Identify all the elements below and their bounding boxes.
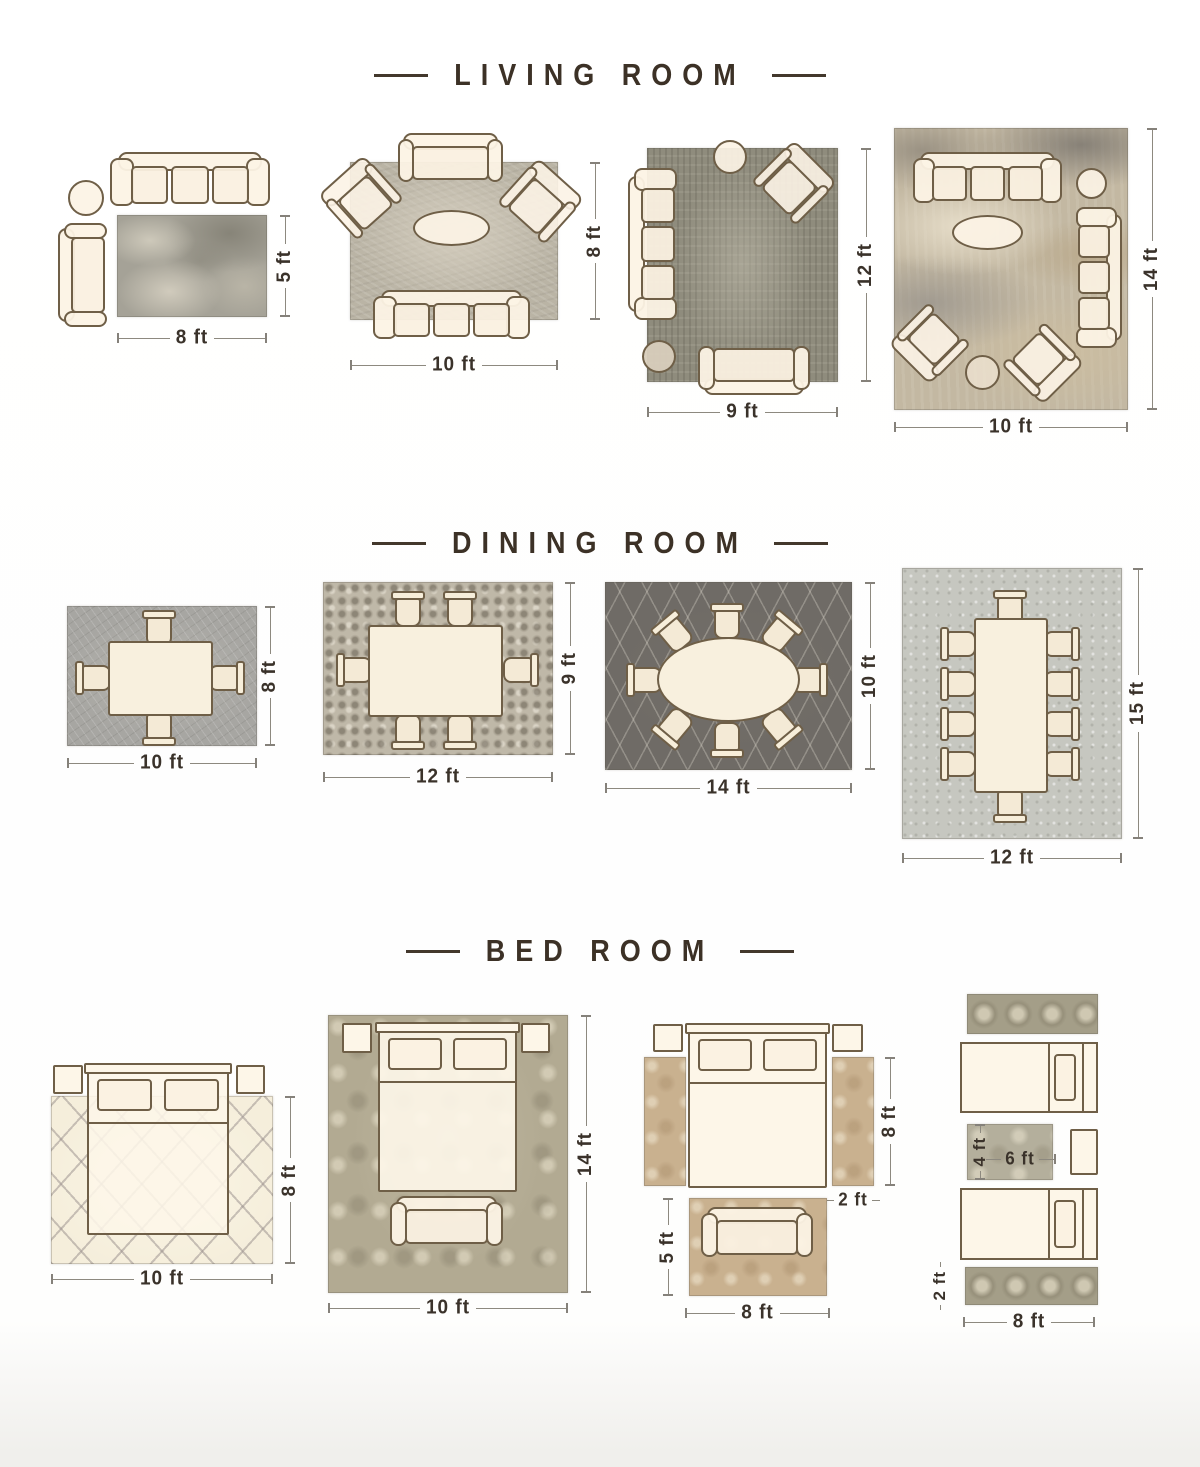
- bench: [701, 1207, 813, 1258]
- cushion: [171, 166, 208, 203]
- foot-rug-width-dimension: 8 ft: [685, 1305, 830, 1321]
- dining-chair: [1044, 629, 1080, 659]
- dining-table: [368, 625, 503, 717]
- sofa-seats: [932, 166, 1042, 201]
- sofa-seats: [412, 146, 490, 180]
- sofa: [110, 152, 270, 207]
- dining-chair: [445, 714, 475, 750]
- section-title-bed-room: BED ROOM: [486, 934, 715, 969]
- bench-seat: [405, 1209, 489, 1244]
- dining-chair: [336, 655, 372, 685]
- sofa-arm: [1040, 158, 1062, 203]
- dining-chair: [209, 663, 245, 693]
- dining-chair: [940, 629, 976, 659]
- sofa-arm: [1076, 327, 1117, 348]
- runner-width-dimension: 2 ft: [826, 1192, 880, 1208]
- dining-diagram-14x10: 14 ft 10 ft: [595, 565, 890, 810]
- blanket-fold: [1048, 1190, 1050, 1258]
- cushion: [1078, 297, 1110, 330]
- title-dash-left: [374, 74, 428, 77]
- section-header-bed-room: BED ROOM: [0, 936, 1200, 967]
- rug: [117, 215, 267, 317]
- dining-diagram-12x15: 12 ft 15 ft: [890, 560, 1180, 880]
- dining-chair: [712, 722, 742, 758]
- sofa-seats: [641, 188, 675, 301]
- cushion: [393, 303, 430, 337]
- width-dimension: 12 ft: [902, 850, 1122, 866]
- dining-chair: [393, 591, 423, 627]
- width-dimension: 8 ft: [117, 330, 267, 346]
- bed-diagram-twin-runners: 4 ft 6 ft 2 ft 8 ft: [930, 985, 1180, 1330]
- blanket-fold: [379, 1081, 516, 1083]
- height-dimension: 14 ft: [1144, 128, 1160, 410]
- title-dash-left: [372, 542, 426, 545]
- headboard: [84, 1063, 232, 1074]
- width-dimension: 10 ft: [350, 357, 558, 373]
- loveseat: [698, 345, 810, 395]
- bench-arm: [486, 1202, 503, 1246]
- dining-chair: [1044, 669, 1080, 699]
- rug-size-guide: LIVING ROOM 8 ft 5 ft: [0, 0, 1200, 1467]
- height-dimension: 15 ft: [1130, 568, 1146, 839]
- dining-chair: [393, 714, 423, 750]
- living-diagram-10x8: 10 ft 8 ft: [330, 120, 620, 380]
- sofa-arm: [793, 346, 810, 390]
- bed-diagram-10x8: 10 ft 8 ft: [30, 1040, 320, 1310]
- bed: [688, 1024, 827, 1188]
- height-dimension: 8 ft: [282, 1096, 298, 1264]
- loveseat: [398, 133, 503, 183]
- pillow: [97, 1079, 152, 1111]
- side-table: [713, 140, 747, 174]
- dining-chair: [1044, 749, 1080, 779]
- dining-chair: [75, 663, 111, 693]
- cushion: [641, 226, 675, 262]
- height-dimension: 12 ft: [858, 148, 874, 382]
- section-title-living-room: LIVING ROOM: [454, 58, 746, 93]
- sofa: [1075, 207, 1122, 348]
- pillow: [763, 1039, 817, 1071]
- ottoman: [965, 355, 1000, 390]
- dining-chair: [940, 709, 976, 739]
- height-dimension: 5 ft: [277, 215, 293, 317]
- height-dimension: 8 ft: [262, 606, 278, 746]
- loveseat: [58, 223, 108, 327]
- dining-diagram-10x8: 10 ft 8 ft: [40, 580, 330, 790]
- runner-rug: [832, 1057, 874, 1186]
- cushion: [412, 146, 490, 180]
- cushion: [1078, 225, 1110, 258]
- sofa: [373, 290, 530, 340]
- section-title-dining-room: DINING ROOM: [452, 526, 748, 561]
- blanket-fold: [88, 1122, 228, 1124]
- living-diagram-10x14: 10 ft 14 ft: [880, 110, 1180, 440]
- sofa-seats: [713, 348, 796, 382]
- width-dimension: 9 ft: [647, 404, 838, 420]
- bench-seat: [716, 1220, 799, 1255]
- dining-chair: [712, 603, 742, 639]
- headboard: [1082, 1044, 1084, 1111]
- dining-chair: [445, 591, 475, 627]
- pillow: [453, 1038, 507, 1070]
- runner-length-dimension: 8 ft: [882, 1057, 898, 1186]
- width-dimension: 12 ft: [323, 769, 553, 785]
- width-dimension: 10 ft: [894, 419, 1128, 435]
- side-table: [1076, 168, 1107, 199]
- living-diagram-8x5: 8 ft 5 ft: [40, 130, 340, 370]
- nightstand: [53, 1065, 83, 1094]
- bed-diagram-10x14: 10 ft 14 ft: [320, 1000, 620, 1330]
- dining-chair: [940, 749, 976, 779]
- bench-arm: [796, 1213, 813, 1257]
- cushion: [641, 188, 675, 224]
- runner-length-dimension: 8 ft: [963, 1314, 1095, 1330]
- section-header-dining-room: DINING ROOM: [0, 528, 1200, 559]
- headboard: [1082, 1190, 1084, 1258]
- width-dimension: 10 ft: [51, 1271, 273, 1287]
- title-dash-right: [772, 74, 826, 77]
- cushion: [970, 166, 1005, 201]
- sofa-arm: [246, 158, 270, 206]
- coffee-table: [413, 210, 490, 246]
- section-header-living-room: LIVING ROOM: [0, 60, 1200, 91]
- height-dimension: 8 ft: [587, 162, 603, 320]
- runner-rug: [967, 994, 1098, 1034]
- runner-width-dimension: 2 ft: [932, 1262, 948, 1310]
- cushion: [212, 166, 249, 203]
- coffee-table: [952, 215, 1023, 250]
- sofa-arm: [487, 139, 503, 183]
- sofa-arm: [506, 296, 530, 340]
- side-table: [68, 180, 104, 216]
- cushion: [405, 1209, 489, 1244]
- cushion: [433, 303, 470, 337]
- width-dimension: 10 ft: [328, 1300, 568, 1316]
- sofa: [628, 168, 678, 320]
- pillow: [1054, 1200, 1075, 1248]
- cushion: [932, 166, 967, 201]
- twin-bed: [960, 1188, 1098, 1260]
- runner-rug: [644, 1057, 686, 1186]
- width-dimension: 10 ft: [67, 755, 257, 771]
- dining-table: [108, 641, 213, 716]
- dining-chair: [503, 655, 539, 685]
- cushion: [716, 1220, 799, 1255]
- sofa: [913, 152, 1062, 204]
- height-dimension: 14 ft: [578, 1015, 594, 1293]
- cushion: [131, 166, 168, 203]
- bed-diagram-side-runners: 8 ft 2 ft 5 ft 8 ft: [640, 1010, 900, 1330]
- cushion: [1008, 166, 1043, 201]
- middle-rug-width-dimension: 6 ft: [986, 1151, 1056, 1167]
- dining-chair: [940, 669, 976, 699]
- nightstand: [342, 1023, 372, 1053]
- height-dimension: 9 ft: [562, 582, 578, 755]
- sofa-seats: [1078, 225, 1110, 329]
- sofa-arm: [634, 297, 678, 320]
- living-diagram-9x12: 9 ft 12 ft: [620, 130, 890, 420]
- dining-table: [974, 618, 1048, 793]
- cushion: [713, 348, 796, 382]
- title-dash-right: [740, 950, 794, 953]
- width-dimension: 14 ft: [605, 780, 852, 796]
- bench: [390, 1196, 503, 1247]
- headboard: [685, 1023, 830, 1034]
- dining-table-oval: [657, 637, 800, 722]
- twin-bed: [960, 1042, 1098, 1113]
- height-dimension: 10 ft: [862, 582, 878, 770]
- foot-rug-height-dimension: 5 ft: [660, 1198, 676, 1296]
- nightstand: [653, 1024, 683, 1052]
- sofa-arm: [64, 311, 108, 327]
- sofa-seats: [71, 237, 105, 314]
- runner-rug: [965, 1267, 1098, 1305]
- title-dash-left: [406, 950, 460, 953]
- pillow: [1054, 1054, 1075, 1101]
- cushion: [473, 303, 510, 337]
- ottoman: [642, 340, 676, 373]
- cushion: [71, 237, 105, 314]
- pillow: [388, 1038, 442, 1070]
- pillow: [164, 1079, 219, 1111]
- dining-chair: [1044, 709, 1080, 739]
- blanket-fold: [689, 1082, 826, 1084]
- bed: [87, 1064, 229, 1235]
- headboard: [375, 1022, 520, 1033]
- cushion: [641, 265, 675, 301]
- title-dash-right: [774, 542, 828, 545]
- cushion: [1078, 261, 1110, 294]
- pillow: [698, 1039, 752, 1071]
- nightstand: [1070, 1129, 1098, 1175]
- nightstand: [521, 1023, 550, 1053]
- nightstand: [236, 1065, 265, 1094]
- dining-diagram-12x9: 12 ft 9 ft: [320, 565, 610, 795]
- blanket-fold: [1048, 1044, 1050, 1111]
- bed: [378, 1023, 517, 1192]
- sofa-seats: [131, 166, 249, 203]
- nightstand: [832, 1024, 863, 1052]
- sofa-seats: [393, 303, 509, 337]
